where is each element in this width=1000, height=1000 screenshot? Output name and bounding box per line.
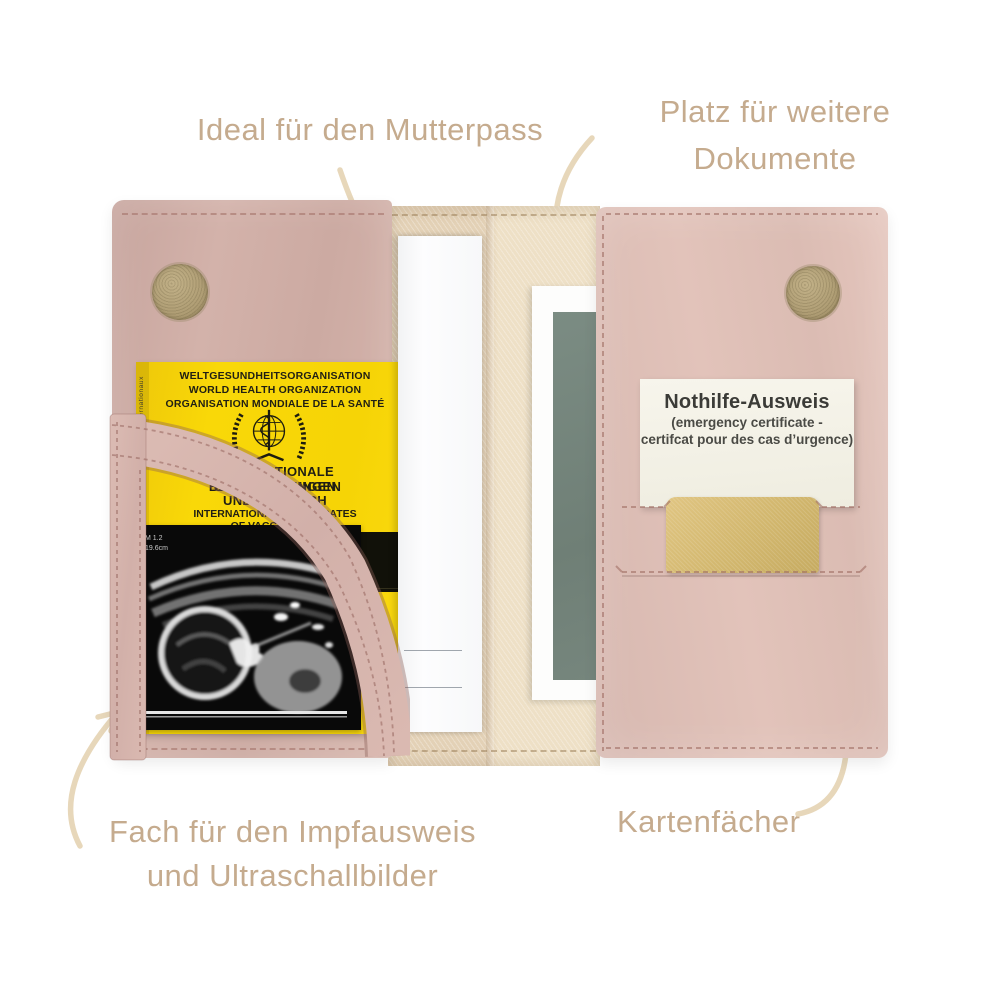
card-slot-upper-stitch [622, 501, 860, 507]
white-paper [398, 236, 482, 732]
annotation-impfausweis-line1: Fach für den Impfausweis [70, 810, 515, 854]
fabric-bottom-stitch [392, 750, 596, 752]
product-photo-canvas: { "annotations": { "mutterpass": "Ideal … [0, 0, 1000, 1000]
annotation-kartenfaecher-text: Kartenfächer [617, 804, 801, 839]
fabric-fold [486, 206, 494, 766]
fabric-top-stitch [392, 214, 596, 216]
annotation-kartenfaecher: Kartenfächer [617, 799, 797, 844]
annotation-impfausweis: Fach für den Impfausweis und Ultraschall… [70, 810, 515, 898]
paper-line [404, 650, 462, 651]
annotation-dokumente-line1: Platz für weitere [580, 88, 970, 135]
annotation-dokumente: Platz für weitere Dokumente [580, 88, 970, 182]
card-slot-lower-stitch [616, 566, 866, 576]
annotation-mutterpass-text: Ideal für den Mutterpass [197, 112, 543, 147]
annotation-impfausweis-line2: und Ultraschallbilder [70, 854, 515, 898]
card-slots-stitching [596, 207, 888, 758]
annotation-mutterpass: Ideal für den Mutterpass [150, 107, 590, 152]
annotation-dokumente-line2: Dokumente [580, 135, 970, 182]
booklet-org-line1: WELTGESUNDHEITSORGANISATION [150, 370, 400, 382]
velcro-dot-left [152, 264, 208, 320]
paper-line [404, 687, 462, 688]
booklet-org-line2: WORLD HEALTH ORGANIZATION [150, 384, 400, 396]
left-panel-top-stitch [122, 213, 384, 215]
corner-pocket [100, 400, 410, 770]
